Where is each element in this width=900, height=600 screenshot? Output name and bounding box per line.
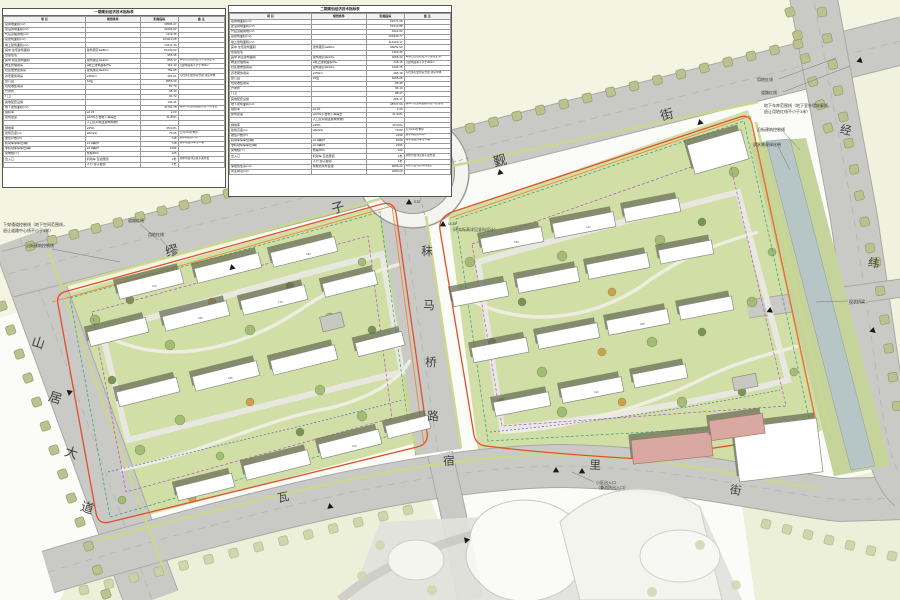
table-cell <box>4 162 86 167</box>
building-floor-label: 18F <box>514 240 519 244</box>
street-tree <box>328 523 339 534</box>
site-tree <box>245 325 255 335</box>
site-tree <box>608 288 616 296</box>
annotation-label: （兼消防出入口） <box>596 484 628 490</box>
site-tree <box>677 397 687 407</box>
street-tree <box>403 505 414 516</box>
economic-indicator-table-1: 一期规划经济技术指标表项 目规划条件实施指标备 注总用地面积(m²)33586.… <box>2 8 226 188</box>
site-tree <box>118 496 126 504</box>
site-tree <box>537 367 547 377</box>
site-tree <box>698 218 706 226</box>
building-floor-label: 11F <box>586 225 591 229</box>
street-tree <box>883 343 893 353</box>
street-name-char: 瓦 <box>277 491 291 505</box>
site-tree <box>108 376 116 384</box>
street-tree <box>838 112 849 123</box>
street-name-char: 纬 <box>867 256 881 271</box>
street-tree <box>675 69 686 80</box>
faded-tree <box>731 580 741 590</box>
street-tree <box>511 111 522 122</box>
street-tree <box>782 524 793 535</box>
street-tree <box>865 243 876 254</box>
site-tree <box>357 411 367 421</box>
street-tree <box>833 85 844 96</box>
building-floor-label: 18F <box>306 252 311 256</box>
annotation-label: 用地红线 <box>757 76 773 82</box>
street-tree <box>605 87 616 98</box>
street-name-char: 里 <box>589 459 601 472</box>
building-floor-label: 18F <box>640 322 645 326</box>
table-cell: 1650.00 <box>367 169 405 174</box>
site-plan-sheet: 11F18F18F11F18F11F18F11F18F11F 5.3215.38… <box>0 0 900 600</box>
street-tree <box>128 572 139 583</box>
site-tree <box>747 297 757 307</box>
street-tree <box>178 560 189 571</box>
street-tree <box>178 199 189 210</box>
annotation-label: 退让道路中心线不小于3米） <box>3 227 53 233</box>
site-tree <box>246 398 254 406</box>
street-tree <box>353 517 364 528</box>
site-tree <box>135 445 145 455</box>
street-tree <box>769 45 780 56</box>
street-tree <box>103 578 114 589</box>
building-floor-label: 11F <box>278 300 283 304</box>
street-name-char: 桥 <box>425 356 437 369</box>
site-tree <box>518 298 526 306</box>
site-tree <box>647 337 657 347</box>
street-tree <box>746 51 757 62</box>
street-tree <box>253 541 264 552</box>
street-tree <box>629 81 640 92</box>
street-tree <box>824 535 835 546</box>
table-row: 商业网点(m²)1650.00 <box>230 169 451 174</box>
street-tree <box>303 529 314 540</box>
street-tree <box>887 551 898 562</box>
annotation-label: 退让用地红线不小于3米） <box>764 108 810 114</box>
annotation-label: 用地红线 <box>148 231 164 237</box>
street-tree <box>153 566 164 577</box>
street-tree <box>200 194 211 205</box>
street-tree <box>822 33 833 44</box>
site-tree <box>296 428 304 436</box>
building-floor-label: 18F <box>198 316 203 320</box>
street-tree <box>843 138 854 149</box>
street-tree <box>90 223 101 234</box>
street-tree <box>278 535 289 546</box>
faded-tree <box>695 540 705 550</box>
street-tree <box>761 519 772 530</box>
annotation-label: （环岛标高详见竖向设计） <box>450 226 498 232</box>
street-tree <box>888 372 898 382</box>
site-tree <box>175 415 185 425</box>
site-tree <box>557 251 567 261</box>
table-cell <box>311 169 366 174</box>
street-tree <box>817 7 828 18</box>
street-tree <box>378 511 389 522</box>
table-title: 一期规划经济技术指标表 <box>3 9 225 16</box>
faded-tree <box>647 587 657 597</box>
street-tree <box>854 190 865 201</box>
site-tree <box>465 257 475 267</box>
street-tree <box>582 93 593 104</box>
site-tree <box>729 167 739 177</box>
elevation-value: 15.38 <box>448 222 456 226</box>
street-tree <box>112 217 123 228</box>
street-tree <box>465 123 476 134</box>
street-tree <box>845 540 856 551</box>
faded-tree <box>375 540 385 550</box>
street-tree <box>156 205 167 216</box>
street-tree <box>558 99 569 110</box>
site-tree <box>698 328 706 336</box>
annotation-label: 沿街建筑控制线 <box>26 242 54 248</box>
street-tree <box>203 554 214 565</box>
annotation-label: 现状桥梁 <box>849 298 865 304</box>
annotation-label: 下穿通道控制线（地下空间范围线， <box>3 221 67 227</box>
annotation-label: 地下车库范围线（地下室外墙轮廓线， <box>764 102 832 108</box>
annotation-label: 沿街建筑控制线 <box>757 126 785 132</box>
street-tree <box>652 75 663 86</box>
street-name-char: 秣 <box>421 244 433 258</box>
table-cell <box>404 169 450 174</box>
street-tree <box>228 548 239 559</box>
site-tree <box>165 340 175 350</box>
street-tree <box>79 585 90 596</box>
street-tree <box>859 216 870 227</box>
street-tree <box>849 164 860 175</box>
site-tree <box>557 407 567 417</box>
street-tree <box>722 57 733 68</box>
table-cell: 人行 缪子觐街 <box>85 162 140 167</box>
street-tree <box>488 117 499 128</box>
street-tree <box>535 105 546 116</box>
table-title: 二期规划经济技术指标表 <box>229 6 451 13</box>
adjacent-building <box>388 540 444 580</box>
faded-tree <box>427 585 437 595</box>
street-tree <box>68 229 79 240</box>
site-tree <box>358 258 366 266</box>
site-tree <box>598 348 606 356</box>
table-cell: 1处 <box>141 162 179 167</box>
table-cell: 商业网点(m²) <box>230 169 312 174</box>
street-tree <box>892 401 900 411</box>
building-floor-label: 11F <box>594 390 599 394</box>
street-tree <box>866 545 877 556</box>
annotation-label: 滨水景观绿化带 <box>753 141 781 147</box>
faded-tree <box>357 571 367 581</box>
site-tree <box>618 398 626 406</box>
building-floor-label: 11F <box>152 284 157 288</box>
street-name-char: 路 <box>427 409 439 423</box>
site-tree <box>315 385 325 395</box>
economic-indicator-table-2: 二期规划经济技术指标表项 目规划条件实施指标备 注总用地面积(m²)51571.… <box>228 5 452 197</box>
elevation-value: 5.32 <box>414 200 420 204</box>
adjacent-building <box>640 530 720 582</box>
street-name-char: 马 <box>423 299 435 312</box>
table-row: 人行 缪子觐街1处 <box>4 162 225 167</box>
building-floor-label: 11F <box>352 444 357 448</box>
site-tree <box>790 368 798 376</box>
street-tree <box>699 63 710 74</box>
table-cell <box>178 162 224 167</box>
street-tree <box>875 286 885 296</box>
street-tree <box>879 314 889 324</box>
site-tree <box>216 452 224 460</box>
street-tree <box>803 529 814 540</box>
street-name-char: 宿 <box>443 454 455 469</box>
annotation-label: 道路红线 <box>761 89 777 95</box>
building-floor-label: 18F <box>228 376 233 380</box>
annotation-label: 道路红线 <box>128 217 144 223</box>
